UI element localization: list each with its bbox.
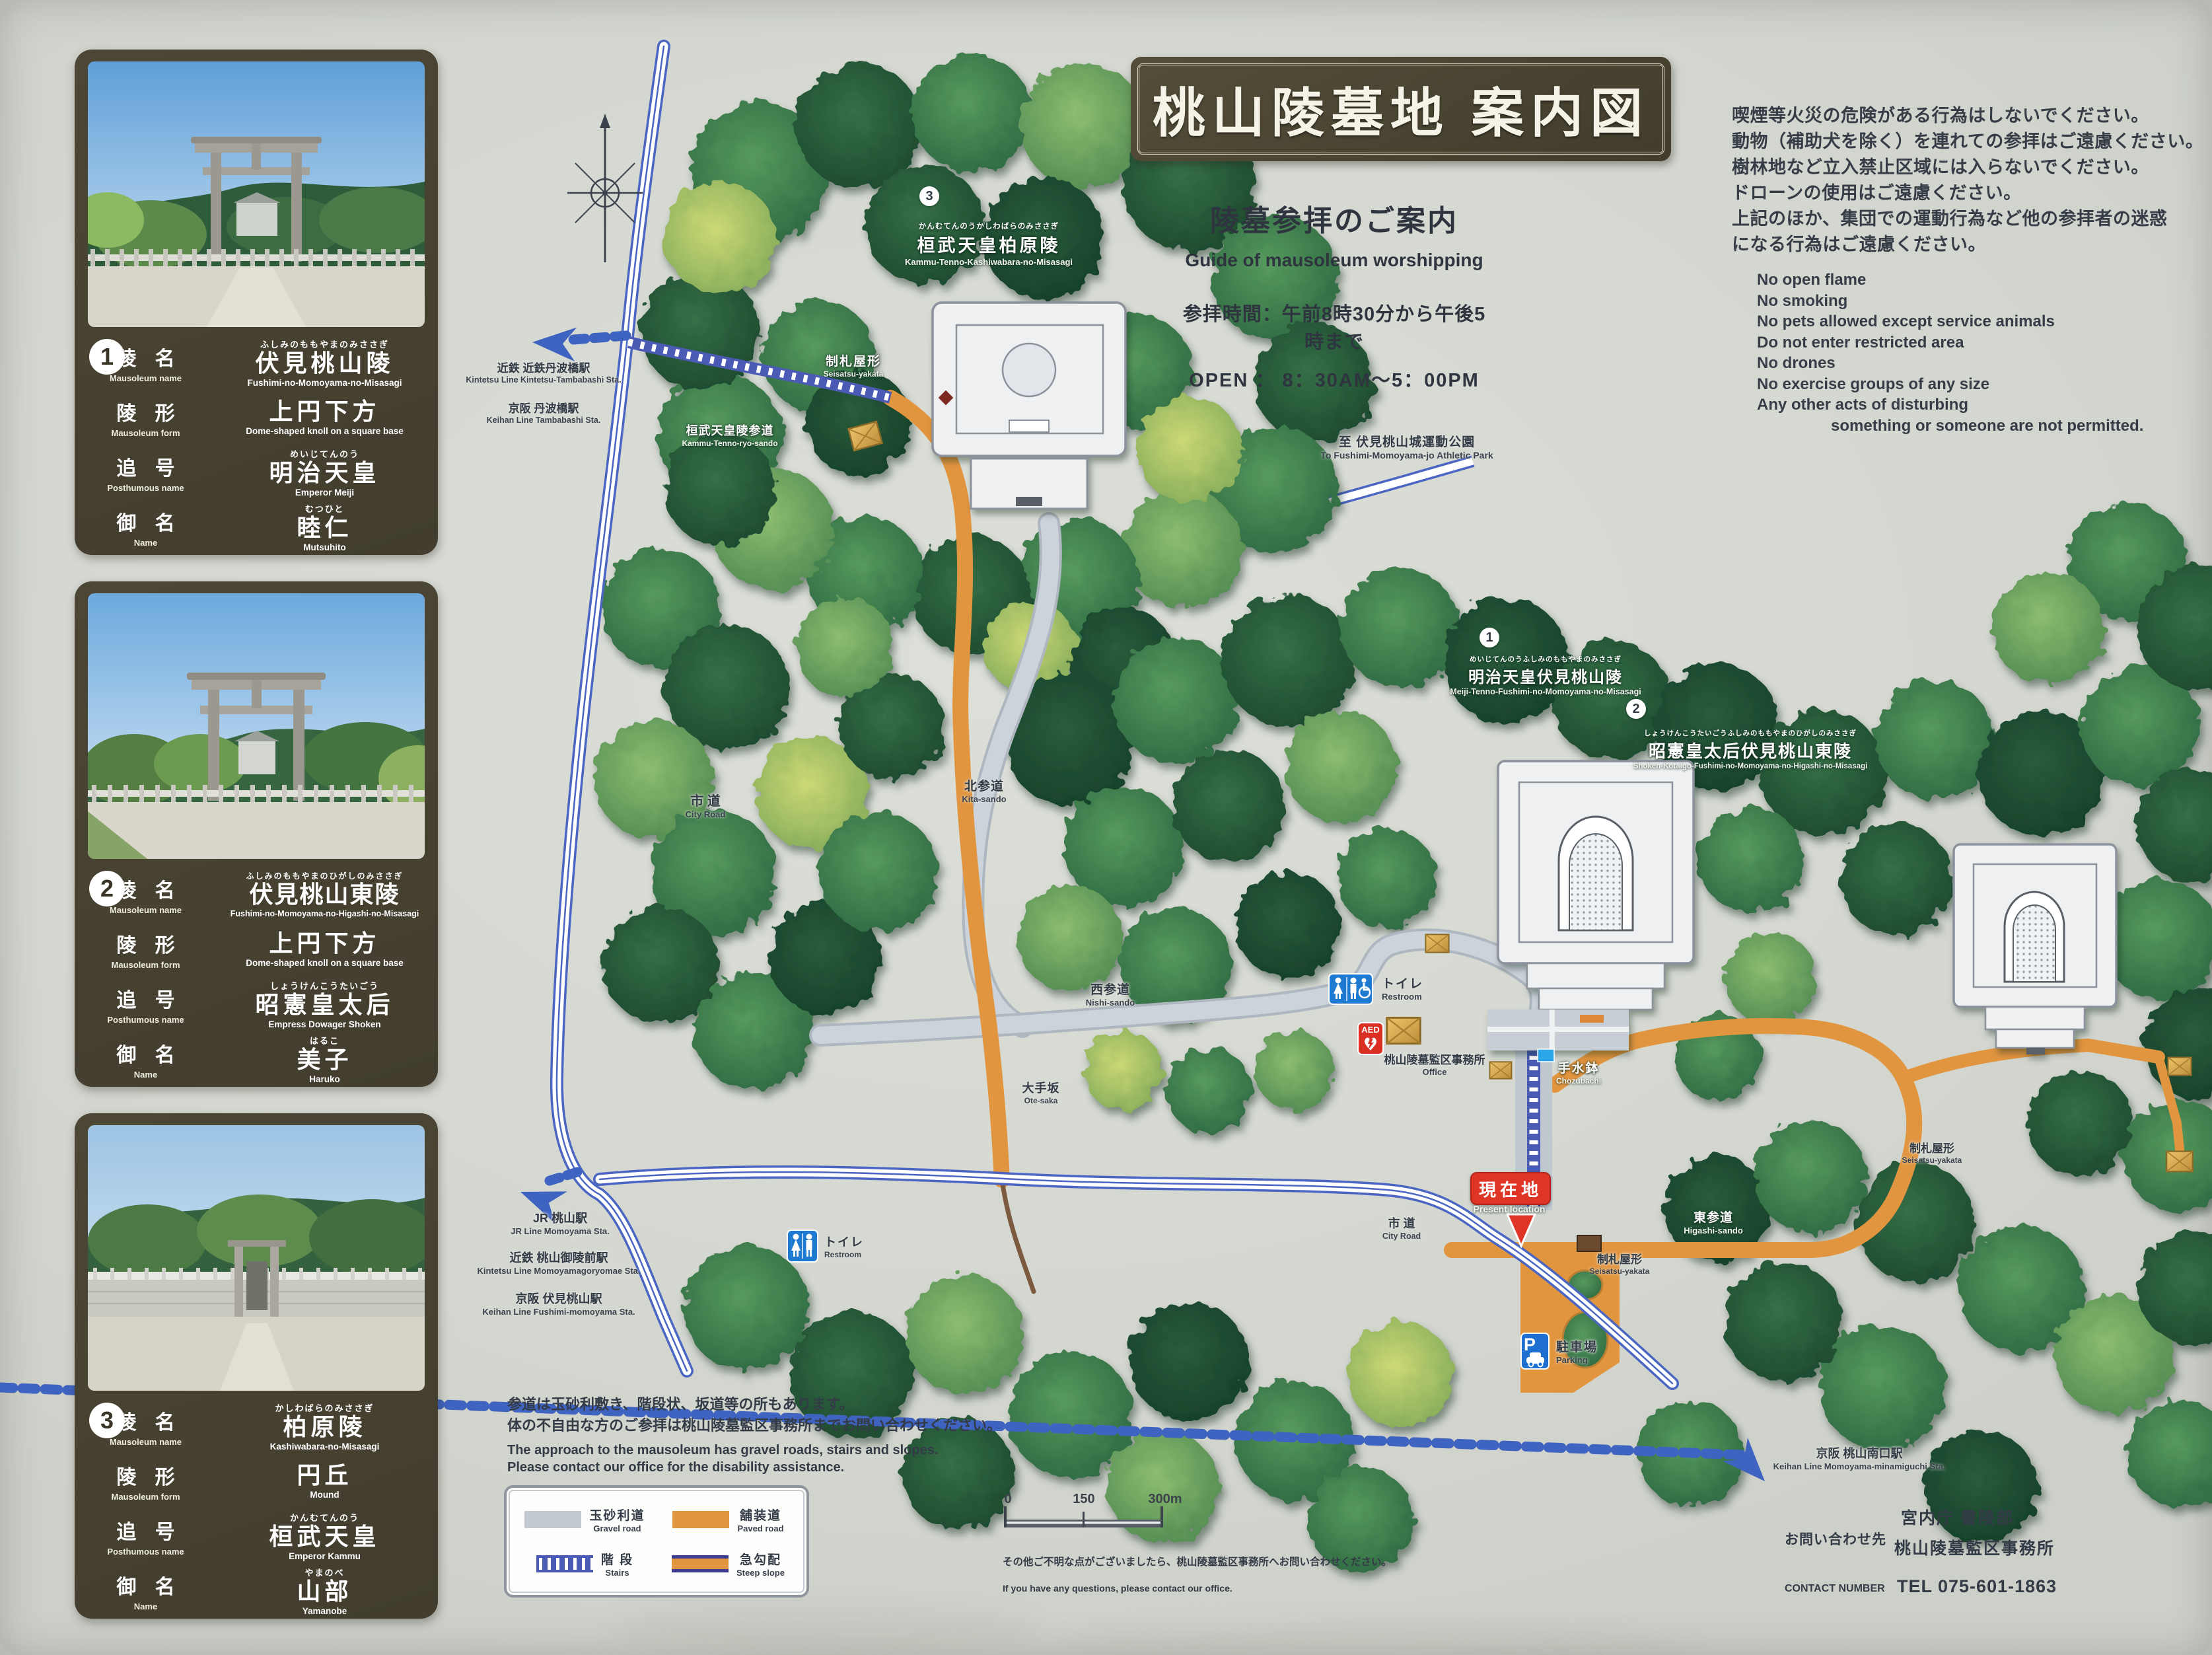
row-label-en: Mausoleum form [75, 428, 217, 438]
shoken-mausoleum-building [1954, 844, 2116, 1054]
present-location-badge: 現在地 [1470, 1172, 1551, 1205]
row-value-en: Yamanobe [217, 1606, 433, 1616]
map-label-present-location-en: Present location [1474, 1204, 1546, 1214]
contact-org-1: 宮内庁 書陵部 [1901, 1505, 2014, 1529]
chozubachi-basin [1538, 1049, 1554, 1062]
row-label-en: Posthumous name [75, 1015, 217, 1025]
map-label-ote-saka: 大手坂 Ote-saka [1022, 1079, 1060, 1105]
row-furigana: かんむてんのう [217, 1511, 433, 1524]
map-label-meiji-mausoleum: めいじてんのうふしみのももやまのみささぎ 明治天皇伏見桃山陵 Meiji-Ten… [1450, 654, 1641, 696]
legend-label-en: Steep slope [736, 1568, 785, 1578]
rule-en: No pets allowed except service animals [1732, 311, 2210, 332]
rule-jp: になる行為はご遠慮ください。 [1732, 232, 2210, 258]
map-label-office: 桃山陵墓監区事務所 Office [1384, 1050, 1485, 1077]
mausoleum-panel-3: 3 陵 名Mausoleum name かしわばらのみささぎ柏原陵Kashiwa… [75, 1113, 438, 1619]
row-label-jp: 陵 形 [75, 1461, 217, 1490]
label-furigana: めいじてんのうふしみのももやまのみささぎ [1450, 654, 1641, 664]
row-label-en: Mausoleum form [75, 960, 217, 970]
panel-row: 追 号Posthumous name かんむてんのう桓武天皇Emperor Ka… [75, 1509, 438, 1564]
row-label-en: Name [75, 538, 217, 548]
contact-label-jp: お問い合わせ先 [1785, 1529, 1886, 1549]
row-label-jp: 御 名 [75, 507, 217, 536]
row-value-en: Mound [217, 1490, 433, 1500]
rule-en-footer: something or someone are not permitted. [1732, 416, 2210, 437]
row-furigana: めいじてんのう [217, 447, 433, 460]
mausoleum-panel-1: 1 陵 名Mausoleum name ふしみのももやまのみささぎ伏見桃山陵Fu… [75, 50, 438, 555]
rules-block: 喫煙等火災の危険がある行為はしないでください。 動物（補助犬を除く）を連れての参… [1732, 103, 2210, 436]
row-value-jp: 柏原陵 [217, 1414, 433, 1440]
row-furigana: かしわばらのみささぎ [217, 1401, 433, 1414]
restroom-icon [787, 1230, 818, 1262]
guide-heading-en: Guide of mausoleum worshipping [1176, 250, 1493, 271]
paved-road-swatch [672, 1511, 729, 1528]
row-furigana: ふしみのももやまのひがしのみささぎ [217, 870, 433, 881]
row-furigana: ふしみのももやまのみささぎ [217, 338, 433, 350]
questions-note: その他ご不明な点がございましたら、桃山陵墓監区事務所へお問い合わせください。 I… [1003, 1554, 1392, 1594]
row-value-jp: 山部 [217, 1578, 433, 1605]
map-label-seisatsu-yakata-north: 制札屋形 Seisatsu-yakata [824, 351, 884, 379]
row-value-en: Mutsuhito [217, 542, 433, 552]
row-label-en: Posthumous name [75, 1547, 217, 1557]
map-label-seisatsu-yakata-south: 制札屋形 Seisatsu-yakata [1590, 1250, 1650, 1276]
row-furigana: はるこ [217, 1034, 433, 1047]
map-label-keihan-fushimi: 京阪 伏見桃山駅 Keihan Line Fushimi-momoyama St… [482, 1290, 635, 1317]
rule-jp: 喫煙等火災の危険がある行為はしないでください。 [1732, 103, 2210, 129]
panel-row: 陵 名Mausoleum name ふしみのももやまのみささぎ伏見桃山陵Fush… [75, 335, 438, 390]
row-value-jp: 円丘 [217, 1462, 433, 1489]
row-value-en: Empress Dowager Shoken [217, 1019, 433, 1029]
rule-en: No drones [1732, 353, 2210, 374]
row-value-jp: 桓武天皇 [217, 1524, 433, 1550]
approach-note-en: The approach to the mausoleum has gravel… [507, 1442, 1001, 1459]
legend-label-en: Gravel road [589, 1524, 645, 1533]
title-plaque: 桃山陵墓地 案内図 [1131, 57, 1671, 161]
row-label-en: Name [75, 1070, 217, 1080]
legend-label-jp: 急勾配 [736, 1550, 785, 1568]
map-label-higashi-sando: 東参道 Higashi-sando [1684, 1208, 1743, 1235]
panel-row: 陵 形Mausoleum form 上円下方Dome-shaped knoll … [75, 922, 438, 976]
rule-en: No open flame [1732, 270, 2210, 291]
row-label-en: Mausoleum name [75, 905, 217, 915]
row-label-en: Mausoleum name [75, 1437, 217, 1447]
map-label-chozubachi: 手水鉢 Chozubachi [1556, 1058, 1601, 1085]
row-label-jp: 追 号 [75, 984, 217, 1013]
panel-row: 御 名Name やまのべ山部Yamanobe [75, 1564, 438, 1619]
row-label-en: Mausoleum form [75, 1492, 217, 1502]
legend-item-steep: 急勾配Steep slope [657, 1541, 800, 1586]
row-value-jp: 上円下方 [217, 398, 433, 425]
stairs-swatch [536, 1555, 593, 1572]
rule-en: No smoking [1732, 291, 2210, 312]
panel-row: 陵 形Mausoleum form 円丘Mound [75, 1453, 438, 1508]
map-number-3: 3 [919, 186, 939, 206]
approach-notes: 参道は玉砂利敷き、階段状、坂道等の所もあります。 体の不自由な方のご参拝は桃山陵… [507, 1394, 1001, 1476]
row-value-jp: 伏見桃山陵 [217, 350, 433, 377]
questions-note-en: If you have any questions, please contac… [1003, 1583, 1392, 1594]
row-value-jp: 上円下方 [217, 930, 433, 957]
map-label-kammu-mausoleum: かんむてんのうかしわばらのみささぎ 桓武天皇柏原陵 Kammu-Tenno-Ka… [905, 221, 1073, 267]
row-label-jp: 陵 形 [75, 397, 217, 426]
row-value-en: Dome-shaped knoll on a square base [217, 426, 433, 436]
mausoleum-panel-2: 2 陵 名Mausoleum name ふしみのももやまのひがしのみささぎ伏見桃… [75, 581, 438, 1087]
legend-label-jp: 階 段 [601, 1550, 633, 1568]
row-furigana: むつひと [217, 502, 433, 515]
row-furigana: やまのべ [217, 1566, 433, 1578]
legend-label-jp: 玉砂利道 [589, 1506, 645, 1524]
row-value-en: Emperor Kammu [217, 1551, 433, 1561]
steep-slope-swatch [672, 1555, 729, 1572]
scale-tick-0: 0 [1004, 1492, 1011, 1507]
row-value-jp: 伏見桃山東陵 [217, 881, 433, 908]
parking-letter: P [1521, 1335, 1538, 1355]
map-label-athletic-park: 至 伏見桃山城運動公園 To Fushimi-Momoyama-jo Athle… [1320, 432, 1493, 460]
map-label-kintetsu-goryomae: 近鉄 桃山御陵前駅 Kintetsu Line Momoyamagoryomae… [477, 1249, 640, 1276]
row-value-en: Emperor Meiji [217, 488, 433, 497]
contact-org-2: 桃山陵墓監区事務所 [1894, 1535, 2055, 1559]
row-label-jp: 陵 名 [75, 1406, 217, 1435]
map-label-city-road-west: 市 道 City Road [686, 790, 726, 819]
rule-jp: 樹林地など立入禁止区域には入らないでください。 [1732, 155, 2210, 180]
guide-hours-en: OPEN ： 8：30AM～5：00PM [1176, 365, 1493, 392]
legend-label-jp: 舗装道 [737, 1506, 783, 1524]
rule-jp: 上記のほか、集団での運動行為など他の参拝者の迷惑 [1732, 206, 2210, 232]
legend-item-paved: 舗装道Paved road [657, 1497, 800, 1541]
legend-item-gravel: 玉砂利道Gravel road [513, 1497, 657, 1541]
approach-note-jp: 参道は玉砂利敷き、階段状、坂道等の所もあります。 [507, 1394, 1001, 1415]
panel-row: 陵 形Mausoleum form 上円下方Dome-shaped knoll … [75, 390, 438, 445]
legend-label-en: Paved road [737, 1524, 783, 1533]
map-legend: 玉砂利道Gravel road 舗装道Paved road 階 段Stairs … [504, 1485, 809, 1598]
rule-jp: 動物（補助犬を除く）を連れての参拝はご遠慮ください。 [1732, 129, 2210, 155]
row-value-en: Fushimi-no-Momoyama-no-Higashi-no-Misasa… [217, 909, 433, 918]
aed-label: AED [1358, 1025, 1383, 1035]
map-number-1: 1 [1480, 628, 1499, 647]
row-value-jp: 美子 [217, 1047, 433, 1073]
map-label-keihan-minamiguchi: 京阪 桃山南口駅 Keihan Line Momoyama-minamiguch… [1773, 1444, 1946, 1471]
legend-label-en: Stairs [601, 1568, 633, 1578]
map-label-jr-momoyama: JR 桃山駅 JR Line Momoyama Sta. [511, 1209, 610, 1236]
rule-jp: ドローンの使用はご遠慮ください。 [1732, 180, 2210, 206]
panel-row: 陵 名Mausoleum name ふしみのももやまのひがしのみささぎ伏見桃山東… [75, 867, 438, 922]
board-grime [614, 1601, 1691, 1655]
map-label-seisatsu-yakata-east: 制札屋形 Seisatsu-yakata [1902, 1139, 1962, 1165]
row-label-jp: 陵 名 [75, 874, 217, 903]
panel-row: 御 名Name むつひと睦仁Mutsuhito [75, 500, 438, 555]
mausoleum-photo [88, 1125, 425, 1391]
row-value-jp: 昭憲皇太后 [217, 992, 433, 1018]
approach-note-en: Please contact our office for the disabi… [507, 1459, 1001, 1476]
questions-note-jp: その他ご不明な点がございましたら、桃山陵墓監区事務所へお問い合わせください。 [1003, 1554, 1392, 1568]
map-number-2: 2 [1626, 699, 1646, 719]
row-label-jp: 御 名 [75, 1570, 217, 1600]
scale-tick-300: 300m [1148, 1492, 1182, 1507]
row-label-jp: 陵 形 [75, 929, 217, 958]
row-value-jp: 睦仁 [217, 515, 433, 541]
mausoleum-photo [88, 61, 425, 327]
row-value-en: Fushimi-no-Momoyama-no-Misasagi [217, 378, 433, 388]
plaque-inner-border [1137, 63, 1664, 155]
row-label-en: Mausoleum name [75, 373, 217, 383]
rule-en: Do not enter restricted area [1732, 332, 2210, 353]
panel-row: 陵 名Mausoleum name かしわばらのみささぎ柏原陵Kashiwaba… [75, 1399, 438, 1453]
meiji-mausoleum-building [1487, 761, 1694, 1050]
mausoleum-photo [88, 593, 425, 859]
contact-phone: TEL 075-601-1863 [1897, 1576, 2057, 1597]
legend-item-stairs: 階 段Stairs [513, 1541, 657, 1586]
rule-en: No exercise groups of any size [1732, 374, 2210, 395]
row-furigana: しょうけんこうたいごう [217, 979, 433, 992]
panel-row: 追 号Posthumous name めいじてんのう明治天皇Emperor Me… [75, 445, 438, 500]
rule-en: Any other acts of disturbing [1732, 394, 2210, 416]
row-value-jp: 明治天皇 [217, 460, 433, 486]
scale-tick-150: 150 [1073, 1492, 1094, 1507]
gravel-road-swatch [524, 1511, 581, 1528]
row-value-en: Dome-shaped knoll on a square base [217, 958, 433, 968]
label-furigana: しょうけんこうたいごうふしみのももやまのひがしのみささぎ [1633, 728, 1868, 738]
label-furigana: かんむてんのうかしわばらのみささぎ [905, 221, 1073, 231]
map-label-restroom-center: トイレ Restroom [1382, 974, 1423, 1002]
map-label-keihan-tambabashi: 京阪 丹波橋駅 Keihan Line Tambabashi Sta. [487, 399, 601, 425]
row-label-jp: 追 号 [75, 452, 217, 481]
row-label-jp: 陵 名 [75, 342, 217, 371]
signboard: 桃山陵墓地 案内図 陵墓参拝のご案内 Guide of mausoleum wo… [0, 0, 2212, 1655]
guide-heading-jp: 陵墓参拝のご案内 [1176, 197, 1493, 239]
panel-row: 追 号Posthumous name しょうけんこうたいごう昭憲皇太后Empre… [75, 977, 438, 1032]
row-label-jp: 御 名 [75, 1039, 217, 1068]
panel-row: 御 名Name はるこ美子Haruko [75, 1032, 438, 1087]
map-label-restroom-west: トイレ Restroom [824, 1233, 864, 1259]
map-label-kintetsu-tambabashi: 近鉄 近鉄丹波橋駅 Kintetsu Line Kintetsu-Tambaba… [466, 359, 621, 385]
row-label-en: Posthumous name [75, 483, 217, 493]
restroom-icon [1329, 974, 1373, 1004]
guide-hours-jp: 参拝時間：午前8時30分から午後5時まで [1176, 299, 1493, 354]
map-label-parking: 駐車場 Parking [1556, 1337, 1598, 1365]
row-label-jp: 追 号 [75, 1516, 217, 1545]
map-label-nishi-sando: 西参道 Nishi-sando [1086, 980, 1135, 1008]
worship-guide: 陵墓参拝のご案内 Guide of mausoleum worshipping … [1176, 197, 1493, 392]
map-label-city-road-south: 市 道 City Road [1382, 1214, 1421, 1241]
contact-label-en: CONTACT NUMBER [1785, 1583, 1885, 1595]
gate-hut [1577, 1235, 1601, 1251]
row-value-en: Kashiwabara-no-Misasagi [217, 1442, 433, 1452]
row-label-en: Name [75, 1601, 217, 1611]
row-value-en: Haruko [217, 1074, 433, 1084]
map-label-kita-sando: 北参道 Kita-sando [962, 776, 1006, 804]
approach-note-jp: 体の不自由な方のご参拝は桃山陵墓監区事務所までお問い合わせください。 [507, 1415, 1001, 1436]
map-label-kammu-sando: 桓武天皇陵参道 Kammu-Tenno-ryo-sando [682, 422, 777, 448]
map-label-shoken-mausoleum: しょうけんこうたいごうふしみのももやまのひがしのみささぎ 昭憲皇太后伏見桃山東陵… [1633, 728, 1868, 770]
